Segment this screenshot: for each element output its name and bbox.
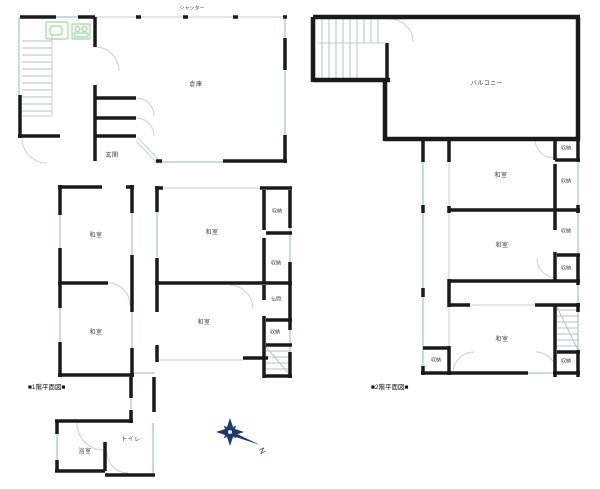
room-label-washitsu-3: 和室 [495, 337, 508, 343]
floor-plan-canvas: N シャッター 倉庫 玄関 和室 和室 収納 収納 仏間 和室 和室 収納 浴室… [0, 0, 600, 489]
room-label-shutter: シャッター [179, 7, 204, 12]
kitchen-sink-icon [46, 22, 68, 39]
room-label-washitsu-2: 和室 [495, 243, 508, 249]
room-label-washitsu-sw: 和室 [89, 330, 102, 336]
floor2-outer-walls [313, 17, 580, 141]
floor-plan-drawing: N [0, 0, 600, 489]
room-label-washitsu-s: 和室 [197, 320, 210, 326]
floor2-door-arcs [390, 19, 557, 373]
floor2-thin-lines [318, 43, 535, 346]
room-label-butsuma: 仏間 [271, 298, 281, 303]
room-label-closet-2f-f: 収納 [431, 359, 441, 364]
room-label-balcony: バルコニー [471, 81, 503, 87]
floor2-walls [387, 43, 580, 377]
room-label-washitsu-nw: 和室 [89, 233, 102, 239]
room-label-warehouse: 倉庫 [189, 82, 202, 88]
compass-rose-icon: N [216, 418, 268, 456]
room-label-closet-2f-a: 収納 [561, 147, 571, 152]
room-label-closet-2f-e: 収納 [561, 360, 571, 365]
room-label-closet-a: 収納 [272, 210, 282, 215]
floor1-title: ■1階平面図■ [28, 385, 65, 392]
floor1-plan [18, 17, 292, 475]
room-label-washitsu-1: 和室 [494, 173, 507, 179]
room-label-bath: 浴室 [78, 449, 91, 455]
floor2-plan [313, 17, 580, 377]
room-label-washitsu-ne: 和室 [205, 230, 218, 236]
room-label-toilet: トイレ [121, 437, 141, 443]
compass-north-label: N [257, 446, 268, 456]
floor2-title: ■2階平面図■ [371, 385, 408, 392]
floor1-door-arcs [22, 47, 253, 473]
room-label-entrance: 玄関 [105, 153, 118, 159]
room-label-closet-2f-d: 収納 [561, 267, 571, 272]
room-label-closet-2f-b: 収納 [561, 180, 571, 185]
room-label-closet-2f-c: 収納 [561, 230, 571, 235]
room-label-closet-c: 収納 [270, 331, 280, 336]
kitchen-stove-icon [72, 24, 90, 39]
room-label-closet-b: 収納 [271, 262, 281, 267]
